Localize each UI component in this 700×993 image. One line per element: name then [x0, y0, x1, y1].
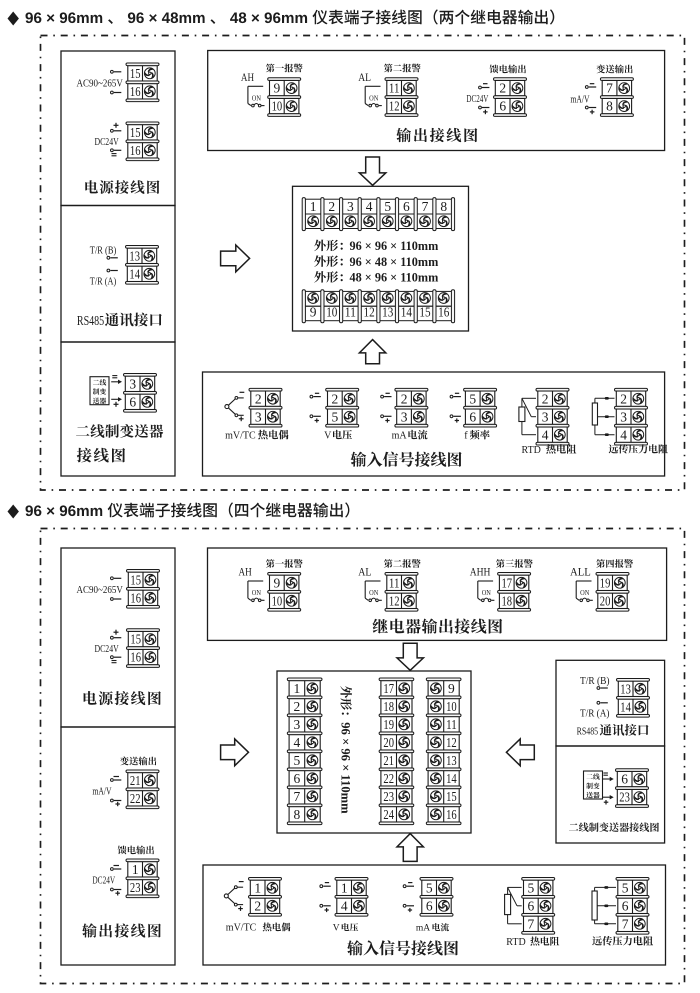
- svg-text:ON: ON: [252, 94, 261, 103]
- svg-text:15: 15: [130, 572, 141, 587]
- svg-text:48 × 96 × 110mm: 48 × 96 × 110mm: [350, 271, 439, 285]
- svg-text:23: 23: [383, 789, 394, 804]
- svg-text:14: 14: [620, 699, 631, 714]
- svg-text:8: 8: [294, 807, 301, 822]
- svg-text:11: 11: [345, 305, 356, 320]
- svg-text:7: 7: [422, 199, 429, 214]
- svg-text:16: 16: [438, 305, 449, 320]
- svg-text:6: 6: [294, 771, 301, 786]
- svg-text:mV/TC: mV/TC: [225, 431, 256, 442]
- svg-text:ON: ON: [482, 588, 491, 597]
- svg-text:9: 9: [310, 305, 317, 320]
- svg-text:3: 3: [294, 717, 301, 732]
- svg-text:RS485: RS485: [577, 726, 599, 738]
- svg-text:1: 1: [254, 880, 261, 895]
- svg-text:3: 3: [347, 199, 354, 214]
- svg-text:14: 14: [401, 305, 412, 320]
- svg-text:4: 4: [542, 427, 549, 442]
- svg-text:T/R (B): T/R (B): [90, 246, 117, 257]
- svg-text:ON: ON: [580, 588, 589, 597]
- svg-text:AL: AL: [358, 72, 371, 84]
- svg-text:1: 1: [132, 862, 139, 877]
- svg-text:12: 12: [364, 305, 375, 320]
- svg-text:2: 2: [254, 898, 261, 913]
- svg-text:mA/V: mA/V: [92, 787, 112, 798]
- svg-text:T/R (B): T/R (B): [580, 676, 610, 687]
- svg-text:6: 6: [469, 409, 476, 424]
- svg-text:T/R (A): T/R (A): [90, 277, 117, 288]
- svg-text:4: 4: [341, 898, 348, 913]
- svg-text:7: 7: [294, 789, 301, 804]
- svg-text:15: 15: [130, 125, 141, 140]
- svg-text:96 × 96 × 110mm: 96 × 96 × 110mm: [350, 239, 439, 253]
- svg-text:DC24V: DC24V: [95, 136, 119, 148]
- svg-text:15: 15: [446, 789, 457, 804]
- svg-text:6: 6: [403, 199, 410, 214]
- svg-text:22: 22: [383, 771, 394, 786]
- svg-text:RTD: RTD: [522, 445, 541, 456]
- svg-text:2: 2: [499, 81, 506, 96]
- svg-text:14: 14: [129, 266, 140, 281]
- svg-text:1: 1: [341, 880, 348, 895]
- svg-text:14: 14: [446, 771, 457, 786]
- svg-text:11: 11: [446, 717, 457, 732]
- svg-text:3: 3: [542, 409, 549, 424]
- svg-text:T/R (A): T/R (A): [580, 709, 610, 720]
- svg-text:9: 9: [274, 575, 281, 590]
- svg-text:2: 2: [620, 391, 627, 406]
- svg-text:3: 3: [401, 409, 408, 424]
- svg-text:13: 13: [446, 753, 457, 768]
- svg-text:10: 10: [326, 305, 337, 320]
- svg-text:16: 16: [130, 590, 141, 605]
- svg-text:12: 12: [389, 593, 400, 608]
- svg-text:17: 17: [383, 681, 394, 696]
- svg-text:DC24V: DC24V: [95, 643, 119, 655]
- svg-text:24: 24: [383, 807, 394, 822]
- svg-text:15: 15: [130, 66, 141, 81]
- svg-text:AL: AL: [358, 567, 371, 579]
- svg-text:8: 8: [440, 199, 447, 214]
- svg-text:10: 10: [272, 593, 283, 608]
- svg-text:96 × 96 × 110mm: 96 × 96 × 110mm: [339, 722, 353, 814]
- svg-text:18: 18: [502, 593, 513, 608]
- svg-text:AHH: AHH: [470, 567, 491, 579]
- svg-text:5: 5: [294, 753, 301, 768]
- svg-text:1: 1: [310, 199, 317, 214]
- svg-text:mA: mA: [416, 924, 430, 934]
- svg-text:15: 15: [130, 632, 141, 647]
- svg-text:10: 10: [446, 699, 457, 714]
- svg-text:11: 11: [389, 575, 400, 590]
- svg-text:4: 4: [294, 735, 301, 750]
- svg-text:23: 23: [619, 790, 630, 805]
- svg-text:15: 15: [419, 305, 430, 320]
- svg-text:21: 21: [383, 753, 394, 768]
- svg-text:7: 7: [528, 916, 535, 931]
- svg-text:6: 6: [621, 772, 628, 787]
- svg-text:ON: ON: [369, 94, 378, 103]
- svg-text:6: 6: [622, 898, 629, 913]
- svg-text:13: 13: [382, 305, 393, 320]
- svg-text:16: 16: [446, 807, 457, 822]
- svg-text:16: 16: [130, 143, 141, 158]
- svg-text:V: V: [324, 431, 332, 442]
- svg-text:2: 2: [332, 391, 339, 406]
- svg-text:ON: ON: [252, 588, 261, 597]
- svg-text:20: 20: [383, 735, 394, 750]
- svg-text:6: 6: [129, 394, 136, 409]
- svg-text:16: 16: [130, 84, 141, 99]
- svg-text:16: 16: [130, 650, 141, 665]
- svg-text:21: 21: [130, 773, 141, 788]
- svg-text:3: 3: [255, 409, 262, 424]
- svg-text:1: 1: [294, 681, 301, 696]
- svg-text:11: 11: [389, 81, 400, 96]
- svg-text:ALL: ALL: [570, 567, 591, 579]
- svg-text:RTD: RTD: [506, 937, 525, 948]
- svg-text:AC90~265V: AC90~265V: [77, 584, 123, 596]
- svg-text:19: 19: [383, 717, 394, 732]
- svg-text:5: 5: [469, 391, 476, 406]
- svg-text:7: 7: [606, 81, 613, 96]
- svg-text:2: 2: [328, 199, 335, 214]
- svg-text:mA/V: mA/V: [570, 95, 590, 106]
- svg-text:ON: ON: [369, 588, 378, 597]
- svg-text:10: 10: [272, 99, 283, 114]
- svg-text:7: 7: [622, 916, 629, 931]
- svg-text:mA: mA: [392, 431, 408, 442]
- svg-text:2: 2: [401, 391, 408, 406]
- svg-text:2: 2: [542, 391, 549, 406]
- svg-text:5: 5: [426, 880, 433, 895]
- svg-text:8: 8: [606, 99, 613, 114]
- svg-text:6: 6: [528, 898, 535, 913]
- svg-text:12: 12: [446, 735, 457, 750]
- svg-text:5: 5: [528, 880, 535, 895]
- svg-text:AH: AH: [241, 72, 254, 84]
- svg-text:18: 18: [383, 699, 394, 714]
- svg-text:AC90~265V: AC90~265V: [77, 78, 123, 90]
- svg-text:5: 5: [622, 880, 629, 895]
- svg-text:5: 5: [332, 409, 339, 424]
- svg-text:19: 19: [600, 575, 611, 590]
- svg-text:96 × 48 × 110mm: 96 × 48 × 110mm: [350, 255, 439, 269]
- svg-text:RS485: RS485: [77, 314, 104, 329]
- svg-text:23: 23: [130, 880, 141, 895]
- svg-text:9: 9: [448, 681, 455, 696]
- svg-text:3: 3: [620, 409, 627, 424]
- svg-text:13: 13: [620, 681, 631, 696]
- svg-text:DC24V: DC24V: [92, 876, 115, 887]
- svg-text:22: 22: [130, 791, 141, 806]
- svg-text:DC24V: DC24V: [466, 94, 488, 105]
- svg-text:AH: AH: [239, 567, 252, 579]
- svg-text:4: 4: [366, 199, 373, 214]
- svg-text:6: 6: [499, 99, 506, 114]
- svg-text:20: 20: [600, 593, 611, 608]
- svg-text:6: 6: [426, 898, 433, 913]
- svg-text:V: V: [333, 924, 340, 934]
- svg-text:17: 17: [502, 575, 513, 590]
- svg-text:4: 4: [620, 427, 627, 442]
- svg-text:2: 2: [255, 391, 262, 406]
- svg-text:9: 9: [274, 81, 281, 96]
- svg-text:mV/TC: mV/TC: [226, 923, 257, 934]
- svg-text:13: 13: [129, 248, 140, 263]
- svg-text:3: 3: [129, 376, 136, 391]
- svg-text:12: 12: [389, 99, 400, 114]
- svg-text:2: 2: [294, 699, 301, 714]
- svg-text:5: 5: [384, 199, 391, 214]
